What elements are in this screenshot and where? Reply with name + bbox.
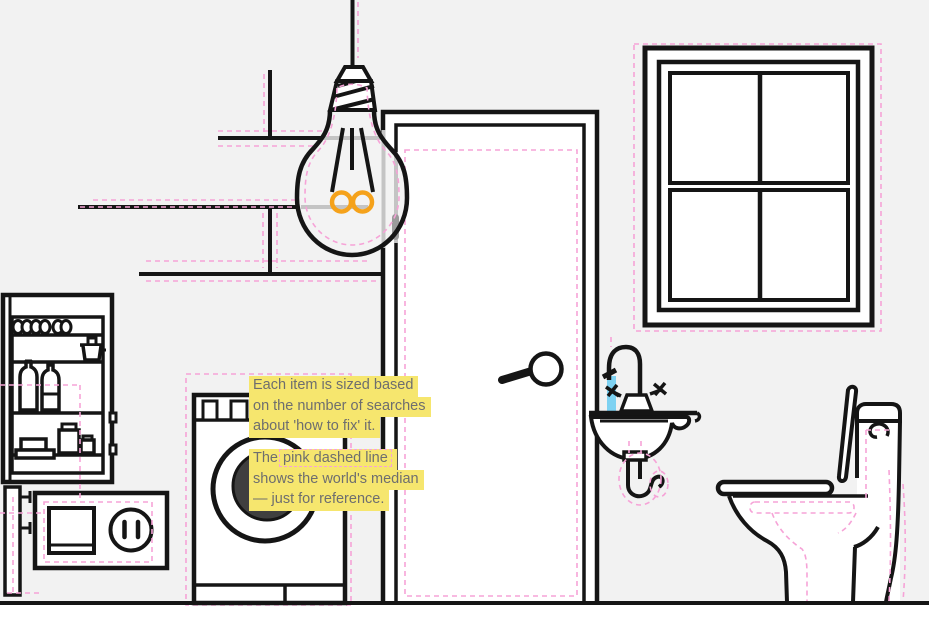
eggs	[13, 321, 71, 334]
room-illustration	[0, 0, 929, 618]
toilet-tank-lid	[857, 404, 900, 421]
washer-button	[203, 401, 217, 420]
window-illustration	[634, 44, 881, 331]
caption-sizing-note: Each item is sized based on the number o…	[249, 376, 431, 438]
illustration-scene: Each item is sized based on the number o…	[0, 0, 929, 618]
washer-button	[231, 401, 247, 420]
caption-median-note: Thepink dashed line shows the world's me…	[249, 449, 424, 511]
fridge-latch	[110, 413, 116, 422]
caption-line: — just for reference.	[249, 490, 389, 511]
pink-dashed-line-callout: pink dashed line	[279, 449, 392, 467]
caption-line: Each item is sized based	[249, 376, 418, 397]
toilet-seat	[718, 482, 832, 494]
door-handle-knob	[531, 354, 562, 385]
below-floor	[0, 603, 929, 618]
outlet-socket	[111, 510, 152, 551]
caption-line: on the number of searches	[249, 397, 431, 418]
caption-line: shows the world's median	[249, 470, 424, 491]
refrigerator-illustration	[3, 295, 116, 482]
fridge-latch	[110, 445, 116, 454]
door-illustration	[383, 110, 597, 603]
caption-prefix: The	[253, 450, 278, 466]
caption-line: about 'how to fix' it.	[249, 417, 380, 438]
